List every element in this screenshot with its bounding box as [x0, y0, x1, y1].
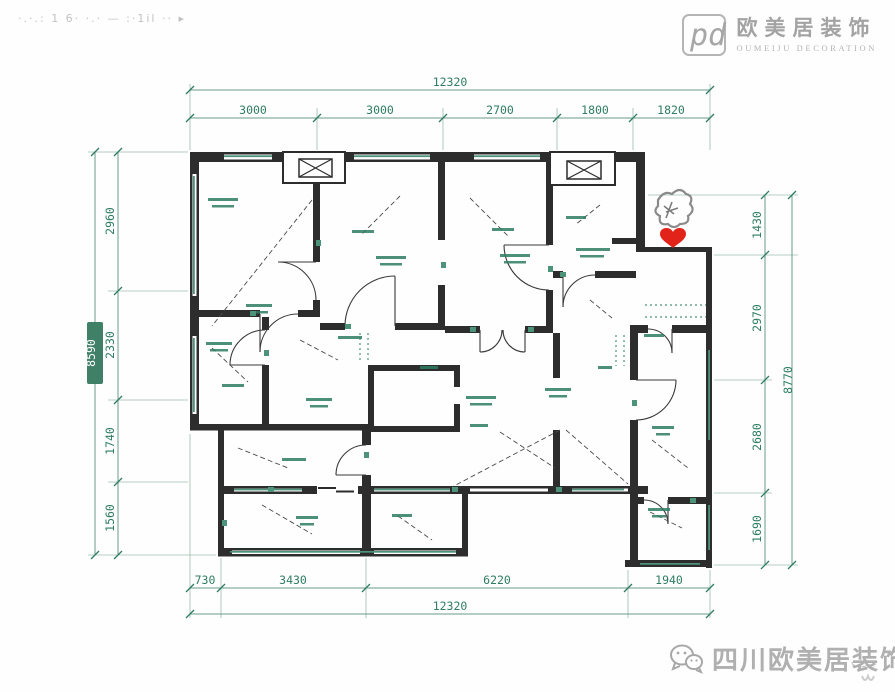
dim-left-1: 2960: [103, 207, 117, 235]
dim-top-2: 3000: [366, 103, 394, 117]
dim-top-4: 1800: [581, 103, 609, 117]
floor-plan-drawing: 12320 3000 3000 2700 1800 1820 730 3430 …: [0, 0, 895, 692]
page: ·.·.: 1 6· ·.· — :·1il ·· ▸ pd 欧美居装饰 OUM…: [0, 0, 895, 692]
doors: [230, 245, 676, 524]
dim-right-total: 8770: [781, 366, 795, 394]
wechat-icon: [668, 642, 704, 676]
dim-right-2: 2970: [750, 304, 764, 332]
footer-company-name: 四川欧美居装饰: [712, 640, 895, 677]
room-label-marks: [206, 198, 674, 526]
dim-right-3: 2680: [750, 423, 764, 451]
scribble-sketch-icon: [655, 190, 692, 227]
dim-right-1: 1430: [750, 211, 764, 239]
dim-left-4: 1560: [103, 504, 117, 532]
dim-bottom-4: 1940: [655, 573, 683, 587]
dim-right-4: 1690: [750, 515, 764, 543]
walls: [190, 152, 712, 568]
dim-bottom-2: 3430: [279, 573, 307, 587]
dim-top-5: 1820: [657, 103, 685, 117]
dim-left-3: 1740: [103, 427, 117, 455]
dim-bottom-1: 730: [195, 573, 216, 587]
dim-top-1: 3000: [239, 103, 267, 117]
dim-bottom-3: 6220: [483, 573, 511, 587]
heart-icon: [660, 228, 686, 248]
dim-left-total: 8590: [84, 339, 98, 367]
dim-left-total-highlight: 8590: [84, 322, 103, 384]
dim-top-total: 12320: [433, 75, 468, 89]
dim-bottom-total: 12320: [433, 599, 468, 613]
dim-top-3: 2700: [486, 103, 514, 117]
footer-branding: 四川欧美居装饰: [668, 640, 895, 677]
dim-left-2: 2330: [103, 331, 117, 359]
